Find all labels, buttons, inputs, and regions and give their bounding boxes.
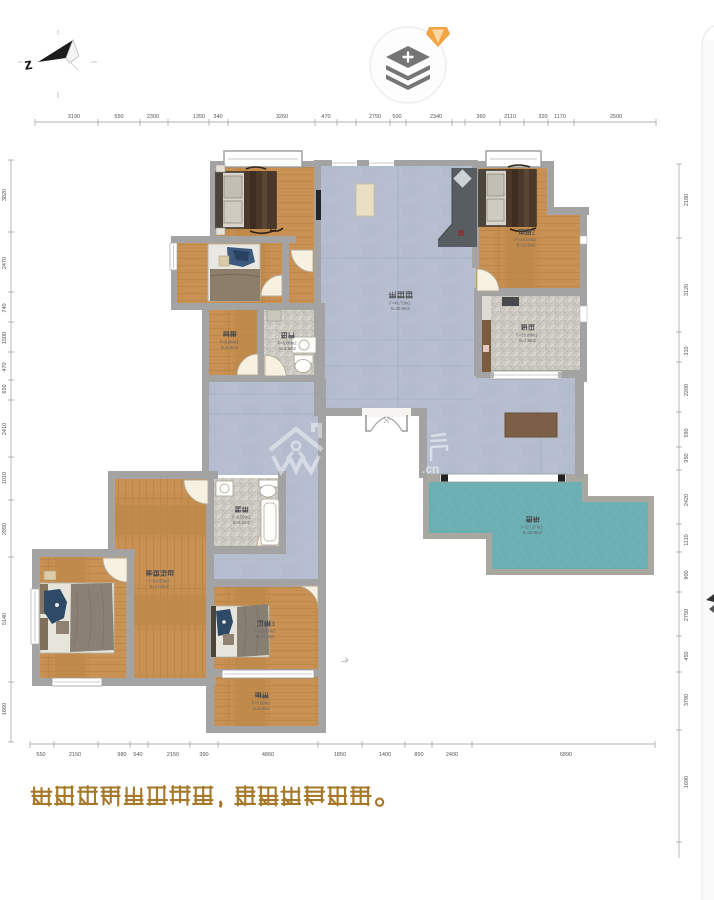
- svg-text:S=6.1m2: S=6.1m2: [233, 520, 251, 525]
- svg-text:1170: 1170: [554, 114, 566, 120]
- svg-text:3190: 3190: [68, 114, 80, 120]
- svg-text:590: 590: [684, 428, 690, 437]
- svg-text:950: 950: [684, 453, 690, 462]
- svg-text:2400: 2400: [446, 752, 458, 758]
- svg-text:3020: 3020: [2, 189, 8, 201]
- svg-text:470: 470: [321, 114, 330, 120]
- svg-text:S=17.6m2: S=17.6m2: [150, 584, 170, 589]
- svg-text:2110: 2110: [504, 114, 516, 120]
- svg-text:980: 980: [117, 752, 126, 758]
- svg-text:2410: 2410: [2, 423, 8, 435]
- svg-text:1400: 1400: [379, 752, 391, 758]
- svg-text:450: 450: [684, 651, 690, 660]
- svg-text:850: 850: [414, 752, 423, 758]
- svg-text:3790: 3790: [684, 694, 690, 706]
- svg-text:470: 470: [2, 362, 8, 371]
- svg-text:6890: 6890: [560, 752, 572, 758]
- svg-text:550: 550: [114, 114, 123, 120]
- svg-text:2200: 2200: [684, 384, 690, 396]
- svg-text:1690: 1690: [684, 776, 690, 788]
- svg-text:2850: 2850: [2, 523, 8, 535]
- svg-text:.cn: .cn: [422, 462, 439, 476]
- svg-text:310: 310: [684, 346, 690, 355]
- svg-text:540: 540: [133, 752, 142, 758]
- svg-text:900: 900: [684, 570, 690, 579]
- svg-text:500: 500: [392, 114, 401, 120]
- svg-text:2750: 2750: [684, 609, 690, 621]
- svg-text:2420: 2420: [684, 494, 690, 506]
- svg-text:340: 340: [213, 114, 222, 120]
- svg-text:3260: 3260: [276, 114, 288, 120]
- svg-text:1850: 1850: [334, 752, 346, 758]
- svg-text:S=11.9m2: S=11.9m2: [517, 242, 537, 247]
- svg-text:1110: 1110: [684, 534, 690, 545]
- svg-text:2180: 2180: [684, 194, 690, 206]
- svg-text:3: 3: [271, 621, 275, 628]
- svg-text:1500: 1500: [2, 332, 8, 344]
- svg-text:S=39.9m2: S=39.9m2: [391, 306, 411, 311]
- svg-text:2470: 2470: [2, 257, 8, 269]
- svg-text:2750: 2750: [369, 114, 381, 120]
- svg-text:S=13.9m2: S=13.9m2: [523, 530, 543, 535]
- svg-text:4860: 4860: [262, 752, 274, 758]
- svg-text:S=4.9m2: S=4.9m2: [279, 346, 297, 351]
- svg-text:2500: 2500: [610, 114, 622, 120]
- svg-text:1010: 1010: [2, 472, 8, 484]
- svg-text:S=11.4m2: S=11.4m2: [256, 634, 276, 639]
- svg-text:1660: 1660: [2, 703, 8, 715]
- svg-text:2340: 2340: [430, 114, 442, 120]
- svg-text:2300: 2300: [147, 114, 159, 120]
- svg-text:740: 740: [2, 303, 8, 312]
- svg-text:5140: 5140: [2, 613, 8, 625]
- svg-text:2150: 2150: [167, 752, 179, 758]
- svg-text:550: 550: [36, 752, 45, 758]
- svg-text:S=5.8m2: S=5.8m2: [221, 345, 239, 350]
- svg-text:3120: 3120: [684, 284, 690, 296]
- svg-text:650: 650: [2, 384, 8, 393]
- svg-text:S=3.5m2: S=3.5m2: [253, 706, 271, 711]
- svg-text:S=7.9m2: S=7.9m2: [519, 338, 537, 343]
- svg-text:390: 390: [199, 752, 208, 758]
- svg-text:320: 320: [538, 114, 547, 120]
- svg-text:2150: 2150: [69, 752, 81, 758]
- svg-text:360: 360: [476, 114, 485, 120]
- svg-text:1350: 1350: [193, 114, 205, 120]
